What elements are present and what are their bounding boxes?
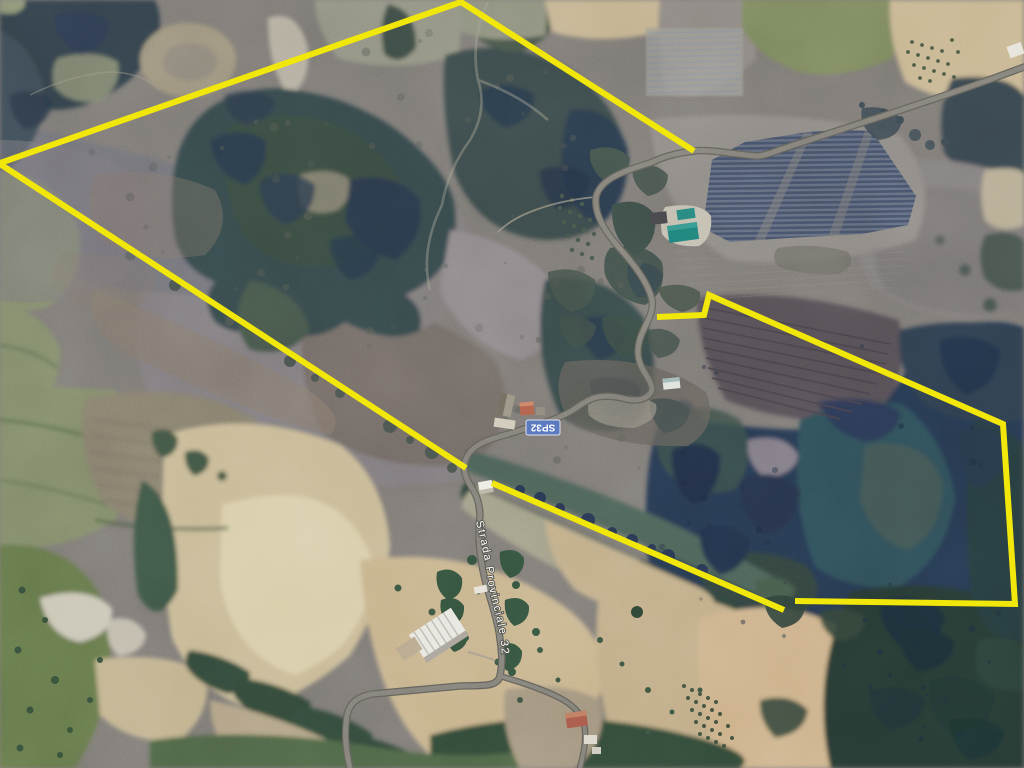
svg-text:SP32: SP32 (530, 422, 555, 433)
